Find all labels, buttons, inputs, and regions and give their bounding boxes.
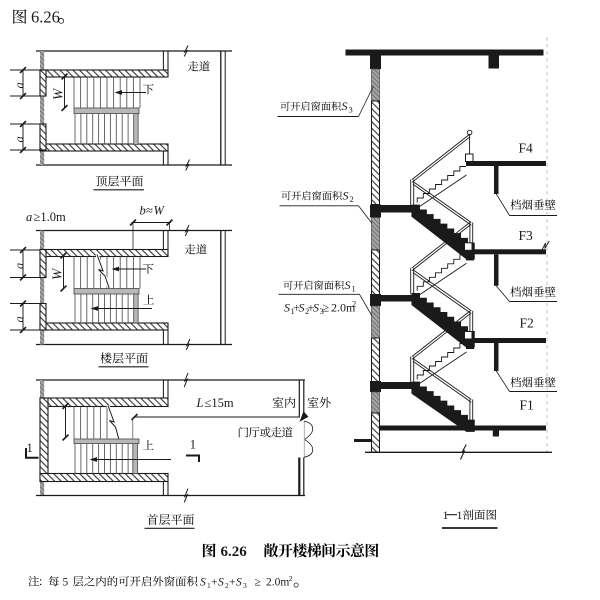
svg-text:b: b [140,204,146,218]
svg-text:2: 2 [352,299,356,309]
svg-text:S: S [345,278,351,292]
svg-text:≥: ≥ [255,577,261,589]
svg-text:W: W [154,204,166,218]
svg-text:1: 1 [352,284,356,294]
svg-text:≤15m: ≤15m [205,396,234,410]
svg-text:6.26: 6.26 [221,544,248,560]
svg-text:+: + [211,577,218,589]
svg-text:W: W [51,87,66,100]
svg-text:S: S [313,301,319,315]
svg-text:F3: F3 [519,228,534,243]
svg-text:1: 1 [190,438,196,452]
svg-text:S: S [200,577,206,589]
svg-text:2.0m: 2.0m [266,577,289,589]
svg-text:2: 2 [289,574,293,583]
svg-text:F2: F2 [520,316,534,331]
svg-text:+: + [229,577,236,589]
svg-text:3: 3 [349,105,353,115]
svg-text:a: a [26,210,32,224]
svg-text:S: S [284,301,290,315]
svg-text:≈: ≈ [146,204,153,218]
svg-text:S: S [343,189,349,203]
svg-text:S: S [342,99,348,113]
svg-text:1: 1 [27,441,33,455]
svg-text:2: 2 [350,194,354,204]
svg-text:F4: F4 [519,141,534,156]
svg-text:≥: ≥ [323,301,330,315]
svg-text:3: 3 [243,581,247,590]
svg-text:≥1.0m: ≥1.0m [34,210,66,224]
svg-text:a: a [13,82,27,88]
svg-text:a: a [13,316,27,322]
svg-text:S: S [236,577,242,589]
svg-text:1: 1 [457,508,463,522]
svg-text:S: S [218,577,224,589]
svg-text:a: a [13,136,27,142]
svg-text:a: a [13,263,27,269]
svg-text:6.26: 6.26 [31,8,60,27]
svg-text:W: W [50,267,65,280]
svg-text:S: S [299,301,305,315]
svg-text:F1: F1 [520,398,534,413]
svg-text:5: 5 [63,577,69,589]
svg-text:L: L [196,396,204,410]
